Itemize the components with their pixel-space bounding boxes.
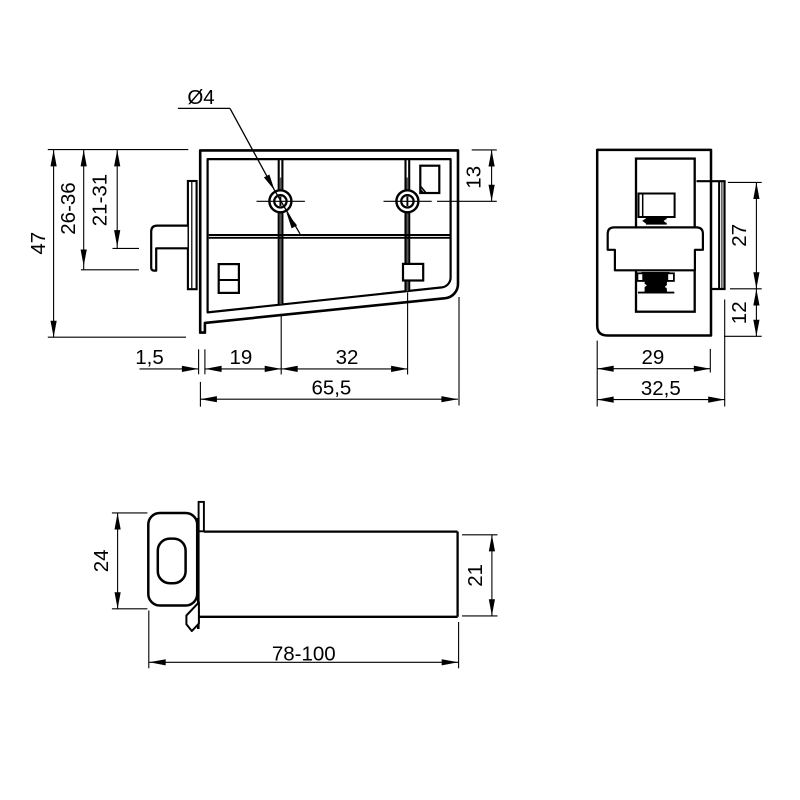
svg-text:32,5: 32,5	[641, 377, 681, 400]
svg-text:Ø4: Ø4	[187, 86, 214, 109]
svg-text:78-100: 78-100	[272, 642, 336, 665]
svg-text:21-31: 21-31	[89, 174, 112, 226]
svg-text:19: 19	[229, 346, 252, 369]
svg-text:27: 27	[728, 224, 751, 247]
svg-text:29: 29	[641, 346, 664, 369]
svg-text:26-36: 26-36	[57, 182, 80, 234]
svg-text:1,5: 1,5	[135, 346, 164, 369]
svg-text:12: 12	[728, 301, 751, 324]
svg-text:21: 21	[464, 564, 487, 587]
svg-text:65,5: 65,5	[311, 377, 351, 400]
svg-text:24: 24	[90, 549, 113, 572]
svg-text:32: 32	[336, 346, 359, 369]
svg-text:47: 47	[27, 232, 50, 255]
svg-text:13: 13	[462, 166, 485, 189]
